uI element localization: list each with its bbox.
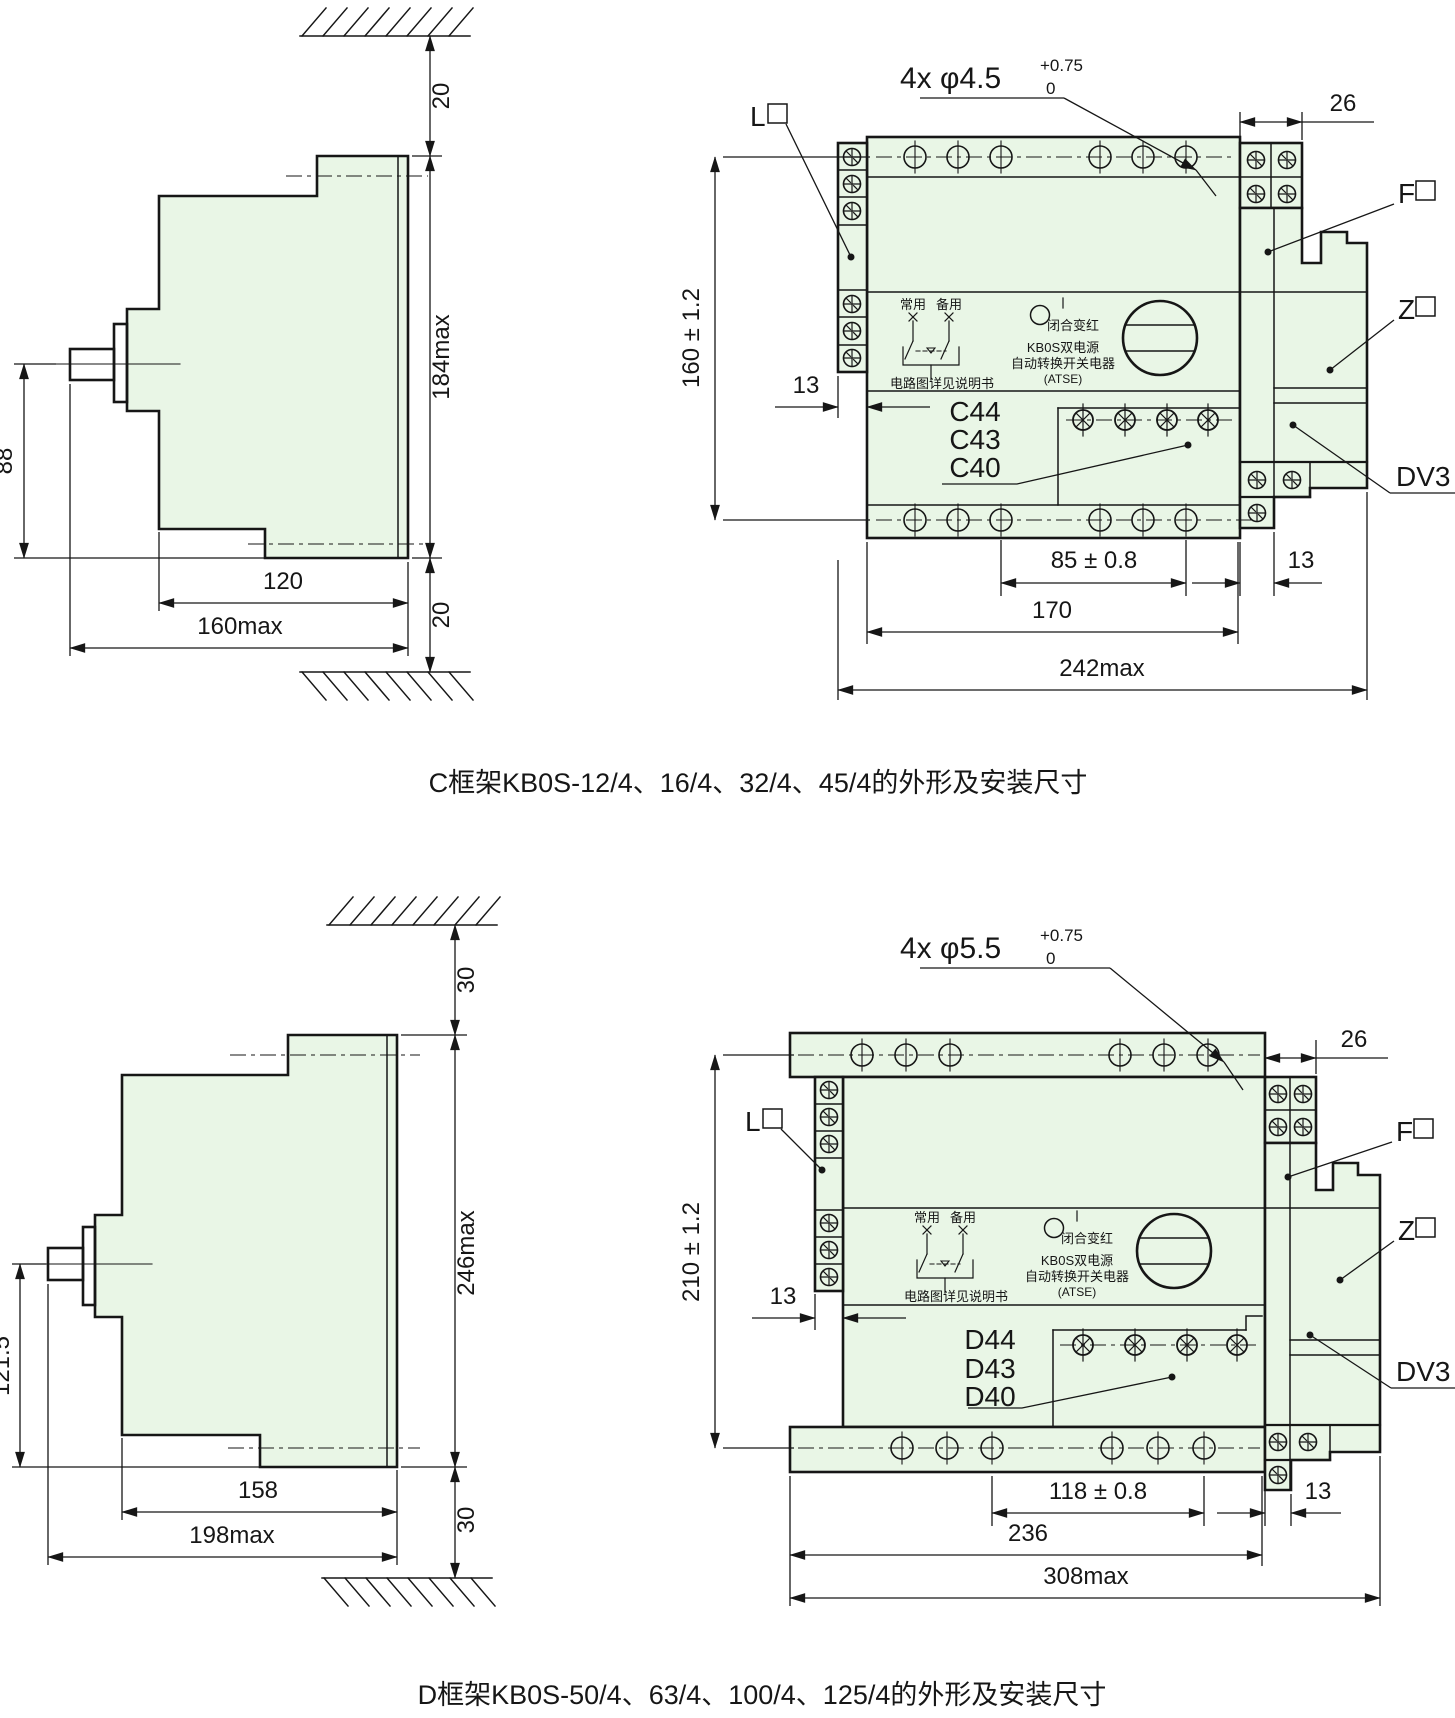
brand-line2: 自动转换开关电器 bbox=[1011, 356, 1115, 371]
dim-text: 210 ± 1.2 bbox=[678, 1202, 705, 1302]
svg-text:L: L bbox=[750, 101, 766, 132]
d-front-face bbox=[843, 1077, 1265, 1427]
svg-text:F: F bbox=[1398, 178, 1415, 209]
dim-text: 242max bbox=[1059, 655, 1144, 682]
dim-text: 20 bbox=[428, 602, 455, 629]
label-standby-supply: 备用 bbox=[936, 297, 962, 312]
svg-text:F: F bbox=[1396, 1116, 1413, 1147]
dim-text: 198max bbox=[189, 1522, 274, 1549]
hole-note-sup: +0.75 bbox=[1040, 56, 1083, 75]
hole-note-text: 4x φ4.5 bbox=[900, 62, 1001, 95]
dim-text: 184max bbox=[428, 314, 455, 399]
d-frame-caption: D框架KB0S-50/4、63/4、100/4、125/4的外形及安装尺寸 bbox=[418, 1680, 1107, 1710]
technical-drawing-canvas: 20 184max 20 88 120 160max bbox=[0, 0, 1455, 1718]
dim-text: 88 bbox=[0, 448, 18, 475]
dim-text: 236 bbox=[1008, 1520, 1048, 1547]
dim-text: 158 bbox=[238, 1477, 278, 1504]
frame-code: D43 bbox=[964, 1353, 1015, 1384]
svg-text:Z: Z bbox=[1398, 1215, 1415, 1246]
dim-text: 246max bbox=[453, 1210, 480, 1295]
c-side-body bbox=[127, 156, 408, 558]
brand-line1: KB0S双电源 bbox=[1027, 340, 1099, 355]
dim-text: 121.5 bbox=[0, 1336, 15, 1396]
label-closed-red: 闭合变红 bbox=[1047, 318, 1099, 333]
dim-text: 13 bbox=[793, 372, 820, 399]
dim-text: 120 bbox=[263, 568, 303, 595]
dim-text: 26 bbox=[1341, 1026, 1368, 1053]
d-right-accessory-region bbox=[1265, 1143, 1380, 1490]
dim-text: 13 bbox=[1288, 547, 1315, 574]
dim-text: 20 bbox=[428, 83, 455, 110]
hole-note-sup: +0.75 bbox=[1040, 926, 1083, 945]
dim-text: 85 ± 0.8 bbox=[1051, 547, 1138, 574]
d-side-body bbox=[95, 1035, 397, 1467]
svg-text:L: L bbox=[745, 1106, 761, 1137]
label-normal-supply: 常用 bbox=[900, 297, 926, 312]
c-front-face bbox=[867, 137, 1240, 538]
c-frame-caption: C框架KB0S-12/4、16/4、32/4、45/4的外形及安装尺寸 bbox=[429, 768, 1088, 798]
brand-line3: (ATSE) bbox=[1044, 372, 1082, 386]
frame-code: C40 bbox=[949, 452, 1000, 483]
dim-text: 160max bbox=[197, 613, 282, 640]
dim-text: 170 bbox=[1032, 597, 1072, 624]
circuit-note: 电路图详见说明书 bbox=[890, 376, 994, 391]
hole-note-sub: 0 bbox=[1046, 79, 1055, 98]
frame-code: C44 bbox=[949, 396, 1000, 427]
frame-code: C43 bbox=[949, 424, 1000, 455]
hole-note-text: 4x φ5.5 bbox=[900, 932, 1001, 965]
dim-text: 118 ± 0.8 bbox=[1049, 1478, 1147, 1505]
dim-text: 308max bbox=[1043, 1563, 1128, 1590]
dim-text: 13 bbox=[1305, 1478, 1332, 1505]
dim-text: 13 bbox=[770, 1283, 797, 1310]
dim-text: 160 ± 1.2 bbox=[678, 288, 705, 388]
hole-note-sub: 0 bbox=[1046, 949, 1055, 968]
dim-text: 30 bbox=[453, 1507, 480, 1534]
svg-text:DV3: DV3 bbox=[1396, 1356, 1450, 1387]
svg-text:DV3: DV3 bbox=[1396, 461, 1450, 492]
dim-text: 26 bbox=[1330, 90, 1357, 117]
svg-text:Z: Z bbox=[1398, 294, 1415, 325]
frame-code: D44 bbox=[964, 1324, 1015, 1355]
dim-text: 30 bbox=[453, 967, 480, 994]
